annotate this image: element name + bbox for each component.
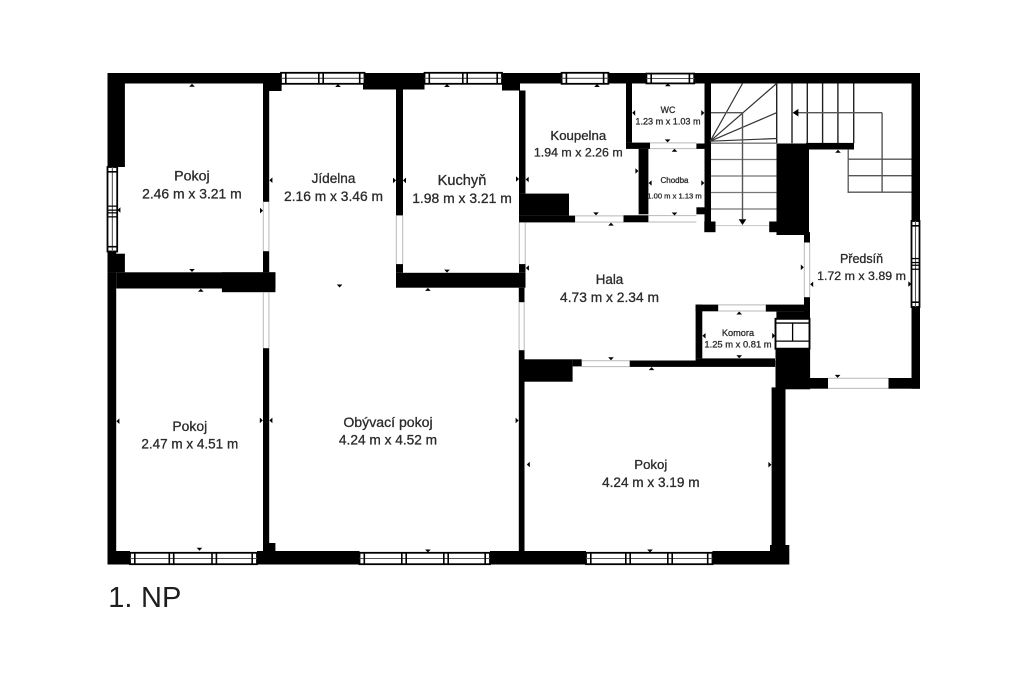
svg-text:Pokoj: Pokoj [634, 457, 667, 472]
svg-text:Obývací pokoj: Obývací pokoj [343, 414, 432, 430]
svg-text:WC: WC [661, 105, 676, 115]
svg-text:1.98 m x 3.21 m: 1.98 m x 3.21 m [412, 190, 512, 206]
svg-text:4.73 m x 2.34 m: 4.73 m x 2.34 m [560, 290, 659, 305]
svg-text:1.72 m x 3.89 m: 1.72 m x 3.89 m [817, 269, 906, 283]
svg-text:Pokoj: Pokoj [172, 418, 207, 434]
svg-text:NP: NP [141, 582, 181, 614]
svg-text:Kuchyň: Kuchyň [438, 173, 487, 189]
svg-text:2.47 m x 4.51 m: 2.47 m x 4.51 m [141, 437, 238, 452]
svg-text:2.16 m x 3.46 m: 2.16 m x 3.46 m [284, 189, 383, 204]
svg-text:1.: 1. [108, 582, 132, 614]
svg-text:Komora: Komora [722, 328, 755, 338]
svg-text:4.24 m x 3.19 m: 4.24 m x 3.19 m [602, 475, 699, 490]
svg-text:Předsíň: Předsíň [840, 252, 883, 266]
svg-text:Koupelna: Koupelna [550, 128, 606, 143]
svg-text:Pokoj: Pokoj [174, 169, 210, 185]
svg-text:Chodba: Chodba [660, 176, 689, 185]
svg-text:4.24 m x 4.52 m: 4.24 m x 4.52 m [339, 433, 437, 448]
svg-text:2.46 m x 3.21 m: 2.46 m x 3.21 m [142, 186, 242, 202]
svg-text:Hala: Hala [596, 272, 624, 287]
svg-text:1.23 m x 1.03 m: 1.23 m x 1.03 m [635, 116, 700, 126]
svg-text:1.94 m x 2.26 m: 1.94 m x 2.26 m [534, 146, 623, 160]
svg-text:Jídelna: Jídelna [312, 171, 356, 186]
svg-text:1.00 m x 1.13 m: 1.00 m x 1.13 m [647, 191, 701, 200]
svg-text:1.25 m x 0.81 m: 1.25 m x 0.81 m [704, 338, 771, 349]
